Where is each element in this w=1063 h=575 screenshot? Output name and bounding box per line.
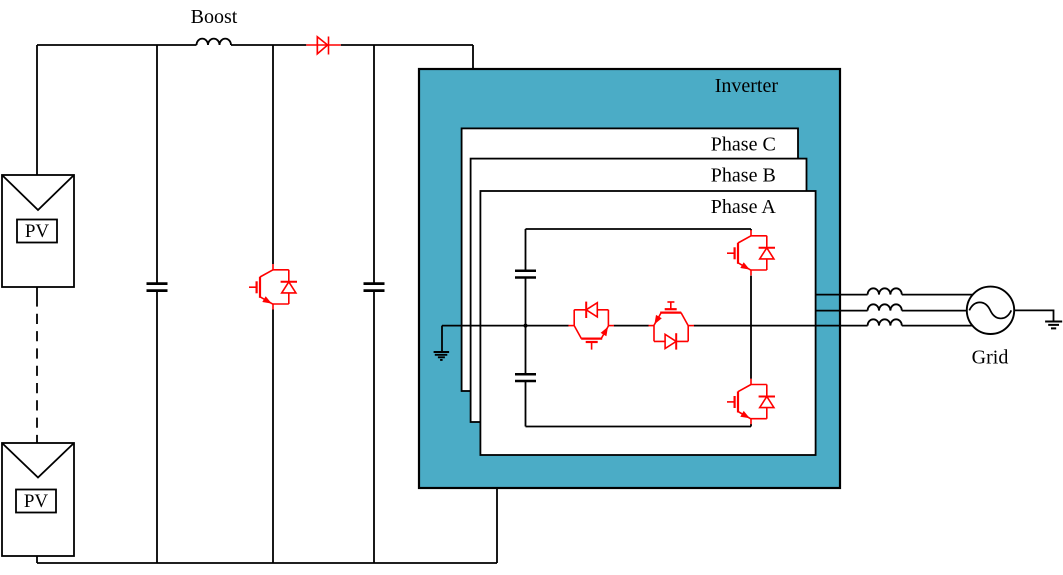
svg-text:Phase A: Phase A (711, 196, 777, 218)
svg-text:PV: PV (25, 221, 50, 242)
svg-text:PV: PV (24, 491, 49, 512)
svg-text:Grid: Grid (972, 346, 1009, 368)
svg-text:Phase C: Phase C (711, 134, 776, 156)
svg-text:Boost: Boost (191, 6, 238, 28)
svg-text:Inverter: Inverter (715, 75, 779, 97)
svg-text:Phase B: Phase B (711, 164, 776, 186)
